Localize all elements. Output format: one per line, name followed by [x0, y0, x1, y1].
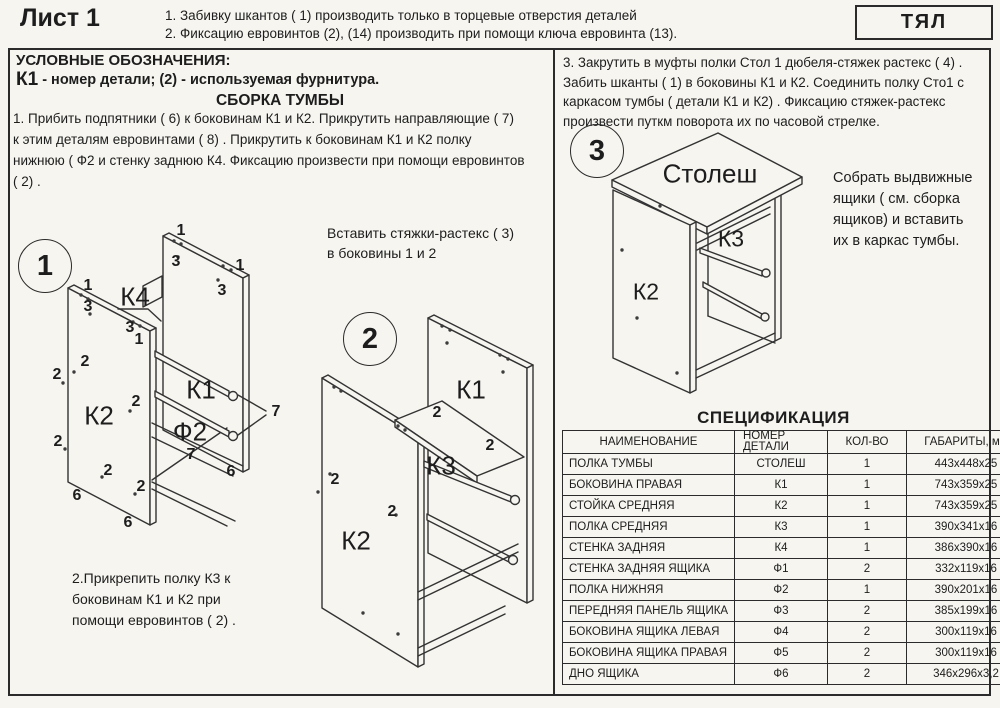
spec-table-row: СТОЙКА СРЕДНЯЯК21743x359x25 [563, 496, 1000, 517]
spec-cell: ДНО ЯЩИКА [563, 664, 735, 685]
spec-cell: БОКОВИНА ПРАВАЯ [563, 475, 735, 496]
part-label-К1: К1 [186, 375, 216, 406]
spec-table-row: ПОЛКА ТУМБЫСТОЛЕШ1443x448x25 [563, 454, 1000, 475]
spec-table-row: СТЕНКА ЗАДНЯЯ ЯЩИКАФ12332x119x16 [563, 559, 1000, 580]
spec-cell: 346x296x3,2 [907, 664, 1000, 685]
callout-2: 2 [104, 462, 113, 480]
spec-cell: СТОЛЕШ [735, 454, 828, 475]
part-label-К2: К2 [633, 279, 659, 306]
sheet-title: Лист 1 [20, 4, 100, 33]
spec-table-row: ДНО ЯЩИКАФ62346x296x3,2 [563, 664, 1000, 685]
spec-table-row: БОКОВИНА ПРАВАЯК11743x359x25 [563, 475, 1000, 496]
callout-6: 6 [73, 487, 82, 505]
spec-cell: БОКОВИНА ЯЩИКА ПРАВАЯ [563, 643, 735, 664]
spec-cell: ПОЛКА ТУМБЫ [563, 454, 735, 475]
callout-7: 7 [272, 403, 281, 421]
spec-cell: К4 [735, 538, 828, 559]
callout-2: 2 [81, 353, 90, 371]
callout-2: 2 [433, 404, 442, 422]
callout-1: 1 [135, 331, 144, 349]
brand-box: ТЯЛ [855, 5, 993, 40]
spec-cell: СТЕНКА ЗАДНЯЯ [563, 538, 735, 559]
spec-cell: 385x199x16 [907, 601, 1000, 622]
callout-1: 1 [177, 222, 186, 240]
spec-table-body: ПОЛКА ТУМБЫСТОЛЕШ1443x448x25БОКОВИНА ПРА… [563, 454, 1000, 685]
spec-cell: 390x341x16 [907, 517, 1000, 538]
spec-cell: Ф4 [735, 622, 828, 643]
spec-table-row: БОКОВИНА ЯЩИКА ПРАВАЯФ52300x119x16 [563, 643, 1000, 664]
spec-cell: Ф5 [735, 643, 828, 664]
spec-cell: 2 [828, 601, 907, 622]
callout-6: 6 [227, 463, 236, 481]
callout-2: 2 [486, 437, 495, 455]
spec-cell: 443x448x25 [907, 454, 1000, 475]
col-header-quantity: КОЛ-ВО [828, 431, 907, 454]
col-header-part-number: НОМЕР ДЕТАЛИ [735, 431, 828, 454]
spec-table-row: БОКОВИНА ЯЩИКА ЛЕВАЯФ42300x119x16 [563, 622, 1000, 643]
spec-title: СПЕЦИФИКАЦИЯ [562, 408, 985, 428]
spec-table-row: СТЕНКА ЗАДНЯЯК41386x390x16 [563, 538, 1000, 559]
diagram-1-badge: 1 [18, 239, 72, 293]
part-label-К3: К3 [718, 226, 744, 253]
col-header-dimensions: ГАБАРИТЫ, мм [907, 431, 1000, 454]
callout-7: 7 [187, 446, 196, 464]
spec-cell: Ф3 [735, 601, 828, 622]
spec-table: НАИМЕНОВАНИЕ НОМЕР ДЕТАЛИ КОЛ-ВО ГАБАРИТ… [562, 430, 1000, 685]
spec-table-row: ПОЛКА НИЖНЯЯФ21390x201x16 [563, 580, 1000, 601]
header-note-1: 1. Забивку шкантов ( 1) производить толь… [165, 8, 637, 23]
part-label-Столеш: Столеш [663, 159, 758, 190]
spec-cell: Ф2 [735, 580, 828, 601]
legend-line: К1 - номер детали; (2) - используемая фу… [16, 69, 379, 91]
part-label-К1: К1 [456, 375, 486, 406]
spec-table-row: ПОЛКА СРЕДНЯЯК31390x341x16 [563, 517, 1000, 538]
diagram-3-badge: 3 [570, 124, 624, 178]
spec-cell: К2 [735, 496, 828, 517]
spec-table-row: ПЕРЕДНЯЯ ПАНЕЛЬ ЯЩИКАФ32385x199x16 [563, 601, 1000, 622]
spec-cell: СТОЙКА СРЕДНЯЯ [563, 496, 735, 517]
drawer-note: Собрать выдвижные ящики ( см. сборка ящи… [833, 168, 972, 252]
callout-3: 3 [172, 253, 181, 271]
callout-1: 1 [84, 277, 93, 295]
spec-cell: 300x119x16 [907, 643, 1000, 664]
callout-2: 2 [132, 393, 141, 411]
legend-part-code: К1 [16, 69, 38, 90]
legend-part-desc: - номер детали; (2) - используемая фурни… [38, 72, 379, 88]
spec-cell: 2 [828, 559, 907, 580]
spec-cell: 1 [828, 538, 907, 559]
spec-cell: ПОЛКА НИЖНЯЯ [563, 580, 735, 601]
spec-cell: ПОЛКА СРЕДНЯЯ [563, 517, 735, 538]
spec-cell: Ф6 [735, 664, 828, 685]
callout-2: 2 [54, 433, 63, 451]
callout-3: 3 [218, 282, 227, 300]
col-header-name: НАИМЕНОВАНИЕ [563, 431, 735, 454]
spec-cell: 390x201x16 [907, 580, 1000, 601]
spec-cell: К3 [735, 517, 828, 538]
spec-cell: 1 [828, 454, 907, 475]
spec-cell: 1 [828, 496, 907, 517]
spec-table-header-row: НАИМЕНОВАНИЕ НОМЕР ДЕТАЛИ КОЛ-ВО ГАБАРИТ… [563, 431, 1000, 454]
spec-cell: 2 [828, 643, 907, 664]
part-label-К4: К4 [120, 282, 150, 313]
assembly-step-1: 1. Прибить подпятники ( 6) к боковинам К… [13, 108, 555, 192]
spec-cell: Ф1 [735, 559, 828, 580]
spec-cell: К1 [735, 475, 828, 496]
diagram-2-drawing [300, 295, 553, 695]
callout-2: 2 [388, 503, 397, 521]
callout-2: 2 [53, 366, 62, 384]
callout-3: 3 [126, 319, 135, 337]
diagram-2-badge: 2 [343, 312, 397, 366]
legend-title: УСЛОВНЫЕ ОБОЗНАЧЕНИЯ: [16, 52, 230, 69]
spec-cell: 743x359x25 [907, 496, 1000, 517]
spec-cell: 743x359x25 [907, 475, 1000, 496]
spec-cell: БОКОВИНА ЯЩИКА ЛЕВАЯ [563, 622, 735, 643]
spec-cell: 300x119x16 [907, 622, 1000, 643]
spec-cell: 1 [828, 475, 907, 496]
insert-note: Вставить стяжки-растекс ( 3) в боковины … [327, 223, 514, 263]
callout-6: 6 [124, 514, 133, 532]
part-label-К2: К2 [341, 526, 371, 557]
header-note-2: 2. Фиксацию евровинтов (2), (14) произво… [165, 26, 677, 41]
spec-cell: 1 [828, 580, 907, 601]
assembly-step-2: 2.Прикрепить полку К3 к боковинам К1 и К… [72, 568, 236, 631]
spec-cell: 332x119x16 [907, 559, 1000, 580]
spec-cell: 2 [828, 664, 907, 685]
part-label-К2: К2 [84, 401, 114, 432]
part-label-Ф2: Ф2 [173, 417, 207, 448]
brand-label: ТЯЛ [901, 11, 947, 34]
callout-3: 3 [84, 298, 93, 316]
assembly-step-3: 3. Закрутить в муфты полки Стол 1 дюбеля… [563, 53, 993, 131]
spec-cell: ПЕРЕДНЯЯ ПАНЕЛЬ ЯЩИКА [563, 601, 735, 622]
assembly-instruction-sheet: Лист 1 1. Забивку шкантов ( 1) производи… [0, 0, 1000, 708]
spec-cell: 1 [828, 517, 907, 538]
spec-cell: СТЕНКА ЗАДНЯЯ ЯЩИКА [563, 559, 735, 580]
callout-2: 2 [137, 478, 146, 496]
spec-cell: 2 [828, 622, 907, 643]
spec-cell: 386x390x16 [907, 538, 1000, 559]
part-label-К3: К3 [426, 451, 456, 482]
callout-2: 2 [331, 471, 340, 489]
callout-1: 1 [236, 257, 245, 275]
